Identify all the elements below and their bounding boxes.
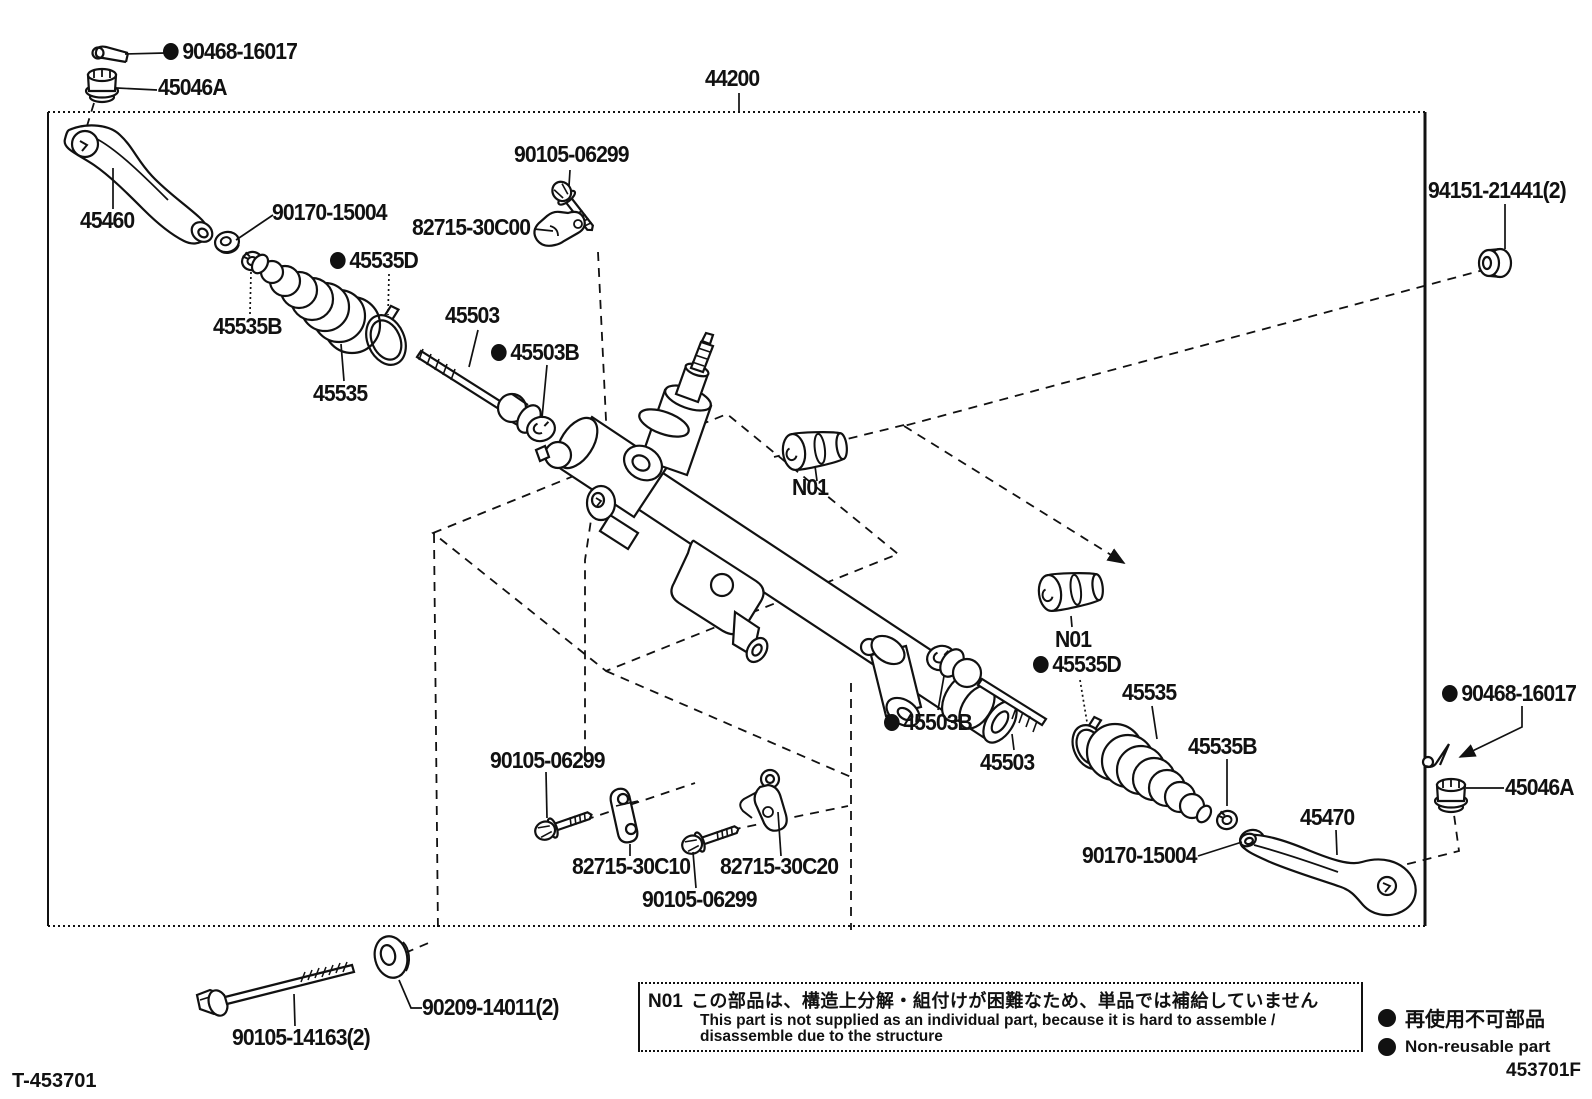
part-label-N01-b: N01 <box>1055 628 1091 651</box>
clamp-bracket-30C00 <box>534 212 584 246</box>
mount-nut-icon <box>1479 249 1511 277</box>
parts-diagram-page: 90468-1601745046A4420090105-0629994151-2… <box>0 0 1592 1099</box>
part-number-text: 45503 <box>445 304 499 327</box>
part-number-text: 90468-16017 <box>182 40 297 63</box>
part-label-45503-a: 45503 <box>445 304 499 327</box>
non-reusable-dot-icon <box>1442 685 1458 702</box>
non-reusable-dot-icon <box>1033 656 1049 673</box>
tie-rod-end-nut-left <box>213 230 241 256</box>
part-label-82715-30C20: 82715-30C20 <box>720 855 838 878</box>
part-label-N01-a: N01 <box>792 476 828 499</box>
note-text-jp: この部品は、構造上分解・組付けが困難なため、単品では補給していません <box>691 987 1319 1013</box>
castle-nut-right-icon <box>1435 779 1467 812</box>
part-number-text: 90209-14011(2) <box>422 996 559 1019</box>
part-label-45046A-b: 45046A <box>1505 776 1574 799</box>
part-label-45535D-a: 45535D <box>330 249 418 272</box>
part-number-text: 82715-30C10 <box>572 855 690 878</box>
figure-code-left: T-453701 <box>12 1070 97 1093</box>
part-label-45470: 45470 <box>1300 806 1354 829</box>
cotter-pin-icon <box>93 47 129 62</box>
part-number-text: 90105-06299 <box>490 749 605 772</box>
non-reusable-dot-icon <box>163 43 179 60</box>
part-number-text: 90468-16017 <box>1461 682 1576 705</box>
part-label-90170-15004-a: 90170-15004 <box>272 201 387 224</box>
part-number-text: N01 <box>792 476 828 499</box>
cotter-pin-right-icon <box>1423 744 1449 767</box>
non-reusable-dot-icon <box>330 252 346 269</box>
part-number-text: 45535D <box>349 249 418 272</box>
note-code: N01 <box>648 991 683 1013</box>
part-number-text: 44200 <box>705 67 759 90</box>
part-label-45503B-a: 45503B <box>491 341 579 364</box>
mount-washer <box>370 933 411 981</box>
part-label-44200: 44200 <box>705 67 759 90</box>
steering-gear-assembly <box>536 333 1023 748</box>
part-number-text: 90105-06299 <box>514 143 629 166</box>
bolt-lower-left <box>532 805 594 843</box>
non-reusable-dot-icon <box>884 714 900 731</box>
assembly-dashed-lines <box>87 103 1487 953</box>
part-number-text: 45503B <box>903 711 972 734</box>
clamp-bracket-30C20 <box>740 770 786 831</box>
note-text-en-line2: disassemble due to the structure <box>700 1029 1353 1045</box>
bolt-lower-center <box>679 819 741 857</box>
part-label-45503-b: 45503 <box>980 751 1034 774</box>
mount-bolt-long <box>197 962 354 1018</box>
note-box: N01 この部品は、構造上分解・組付けが困難なため、単品では補給していません T… <box>638 982 1363 1052</box>
non-reusable-dot-icon <box>491 344 507 361</box>
part-label-82715-30C10: 82715-30C10 <box>572 855 690 878</box>
diagram-boundary-box <box>48 112 1425 926</box>
part-label-90105-06299-a: 90105-06299 <box>514 143 629 166</box>
part-label-90209-14011: 90209-14011(2) <box>422 996 559 1019</box>
part-label-45535D-b: 45535D <box>1033 653 1121 676</box>
part-label-45535B-a: 45535B <box>213 315 282 338</box>
non-reusable-legend: 再使用不可部品 Non-reusable part <box>1378 1003 1550 1057</box>
part-number-text: 45535B <box>1188 735 1257 758</box>
part-number-text: 45046A <box>1505 776 1574 799</box>
part-label-90105-06299-c: 90105-06299 <box>642 888 757 911</box>
legend-text-en: Non-reusable part <box>1405 1037 1550 1057</box>
tie-rod-end-right <box>1238 832 1415 915</box>
part-number-text: 45470 <box>1300 806 1354 829</box>
part-label-90170-15004-b: 90170-15004 <box>1082 844 1197 867</box>
part-label-90105-06299-b: 90105-06299 <box>490 749 605 772</box>
part-label-45535-b: 45535 <box>1122 681 1176 704</box>
clamp-bracket-30C10 <box>611 789 638 843</box>
mount-bushing-left <box>781 427 849 471</box>
part-label-90468-16017-b: 90468-16017 <box>1442 682 1576 705</box>
part-label-45046A-a: 45046A <box>158 76 227 99</box>
part-label-45503B-b: 45503B <box>884 711 972 734</box>
legend-text-jp: 再使用不可部品 <box>1405 1003 1545 1032</box>
part-number-text: 45046A <box>158 76 227 99</box>
part-number-text: 90105-06299 <box>642 888 757 911</box>
mount-bushing-right <box>1037 568 1105 612</box>
part-label-90468-16017-a: 90468-16017 <box>163 40 297 63</box>
diagram-canvas <box>0 0 1592 1099</box>
part-number-text: 45535D <box>1052 653 1121 676</box>
part-label-45535B-b: 45535B <box>1188 735 1257 758</box>
part-number-text: 45535 <box>313 382 367 405</box>
part-number-text: 45460 <box>80 209 134 232</box>
non-reusable-dot-icon <box>1378 1038 1396 1056</box>
part-number-text: 82715-30C00 <box>412 216 530 239</box>
note-text-en-line1: This part is not supplied as an individu… <box>700 1013 1353 1029</box>
boot-clip-right <box>1215 808 1239 832</box>
non-reusable-dot-icon <box>1378 1009 1396 1027</box>
part-number-text: 90170-15004 <box>272 201 387 224</box>
part-label-45535-a: 45535 <box>313 382 367 405</box>
part-number-text: 94151-21441(2) <box>1428 179 1566 202</box>
part-label-94151-21441: 94151-21441(2) <box>1428 179 1566 202</box>
part-label-90105-14163: 90105-14163(2) <box>232 1026 370 1049</box>
part-number-text: N01 <box>1055 628 1091 651</box>
castle-nut-icon <box>86 69 118 102</box>
part-number-text: 82715-30C20 <box>720 855 838 878</box>
part-number-text: 45503 <box>980 751 1034 774</box>
part-number-text: 90170-15004 <box>1082 844 1197 867</box>
figure-code-right: 453701F <box>1506 1060 1581 1082</box>
part-number-text: 90105-14163(2) <box>232 1026 370 1049</box>
part-label-82715-30C00: 82715-30C00 <box>412 216 530 239</box>
part-number-text: 45535 <box>1122 681 1176 704</box>
part-label-45460: 45460 <box>80 209 134 232</box>
part-number-text: 45535B <box>213 315 282 338</box>
part-number-text: 45503B <box>510 341 579 364</box>
